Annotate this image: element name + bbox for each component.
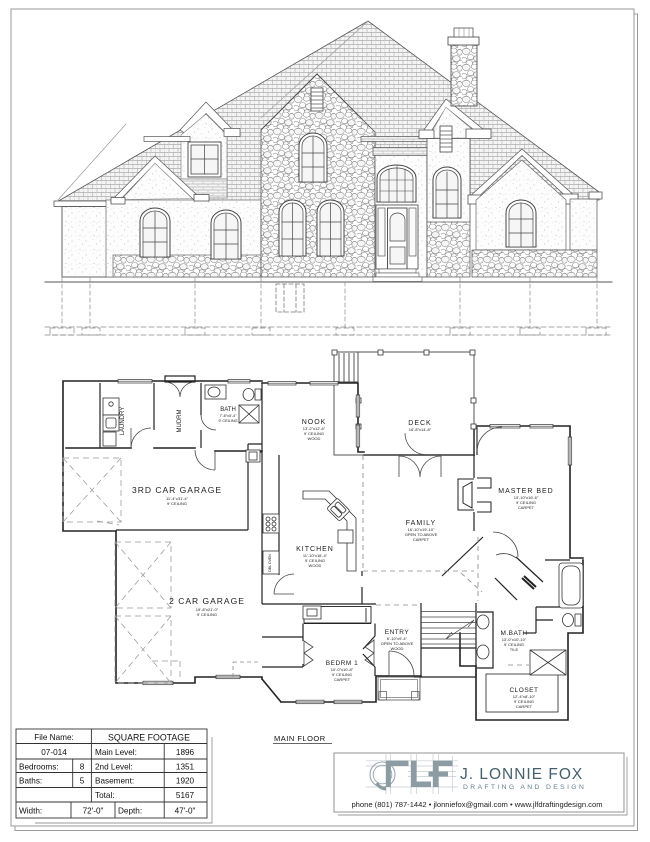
svg-text:CARPET: CARPET	[413, 537, 430, 542]
svg-text:DBL OVEN: DBL OVEN	[268, 554, 272, 572]
svg-text:7'-8"x5'-4": 7'-8"x5'-4"	[219, 414, 237, 418]
svg-text:DRAFTING AND DESIGN: DRAFTING AND DESIGN	[463, 784, 586, 791]
svg-text:J. LONNIE FOX: J. LONNIE FOX	[460, 766, 583, 783]
svg-text:9' CEILING: 9' CEILING	[167, 501, 187, 506]
svg-text:2 CAR GARAGE: 2 CAR GARAGE	[169, 596, 245, 606]
svg-text:3RD CAR GARAGE: 3RD CAR GARAGE	[132, 485, 222, 495]
svg-text:BEDRM 1: BEDRM 1	[326, 660, 358, 667]
svg-text:CARPET: CARPET	[334, 677, 351, 682]
svg-text:9' CEILING: 9' CEILING	[218, 419, 237, 423]
svg-text:16'-8"x14'-8": 16'-8"x14'-8"	[409, 427, 432, 432]
svg-text:CARPET: CARPET	[516, 704, 533, 709]
svg-text:Main Level:: Main Level:	[95, 748, 137, 757]
svg-text:1920: 1920	[176, 777, 195, 786]
svg-text:File Name:: File Name:	[34, 733, 74, 742]
svg-text:SQUARE FOOTAGE: SQUARE FOOTAGE	[108, 733, 190, 743]
svg-text:WOOD: WOOD	[391, 646, 404, 651]
svg-text:ENTRY: ENTRY	[385, 629, 410, 636]
svg-text:8: 8	[80, 763, 85, 772]
svg-text:07-014: 07-014	[41, 748, 67, 757]
svg-text:MASTER BED: MASTER BED	[498, 488, 554, 495]
svg-text:TILE: TILE	[510, 647, 519, 652]
svg-text:1896: 1896	[176, 748, 195, 757]
svg-text:5: 5	[80, 777, 85, 786]
svg-text:Basement:: Basement:	[95, 777, 134, 786]
svg-text:DECK: DECK	[408, 420, 431, 427]
svg-text:BATH: BATH	[220, 407, 236, 413]
svg-text:72'-0": 72'-0"	[83, 807, 104, 816]
svg-text:FAMILY: FAMILY	[406, 520, 436, 527]
svg-text:Width:: Width:	[19, 807, 42, 816]
svg-text:WOOD: WOOD	[309, 563, 322, 568]
svg-text:CLOSET: CLOSET	[509, 687, 538, 694]
svg-text:47'-0": 47'-0"	[175, 807, 196, 816]
svg-text:Total:: Total:	[95, 791, 115, 800]
svg-text:2nd Level:: 2nd Level:	[95, 763, 133, 772]
svg-text:phone (801) 787-1442 • jlonnie: phone (801) 787-1442 • jlonniefox@gmail.…	[351, 800, 602, 809]
svg-text:Bedrooms:: Bedrooms:	[19, 763, 59, 772]
svg-text:M.BATH: M.BATH	[500, 630, 527, 637]
svg-text:MAIN FLOOR: MAIN FLOOR	[274, 734, 326, 743]
svg-text:1351: 1351	[176, 763, 195, 772]
svg-text:Baths:: Baths:	[19, 777, 42, 786]
svg-text:KITCHEN: KITCHEN	[296, 546, 334, 553]
svg-text:CARPET: CARPET	[518, 505, 535, 510]
svg-text:MUDRM: MUDRM	[177, 410, 183, 433]
svg-text:Depth:: Depth:	[118, 807, 142, 816]
svg-text:WOOD: WOOD	[308, 436, 321, 441]
svg-text:5167: 5167	[176, 791, 195, 800]
svg-text:LAUNDRY: LAUNDRY	[120, 407, 126, 436]
svg-text:9' CEILING: 9' CEILING	[197, 612, 217, 617]
svg-text:NOOK: NOOK	[302, 419, 327, 426]
